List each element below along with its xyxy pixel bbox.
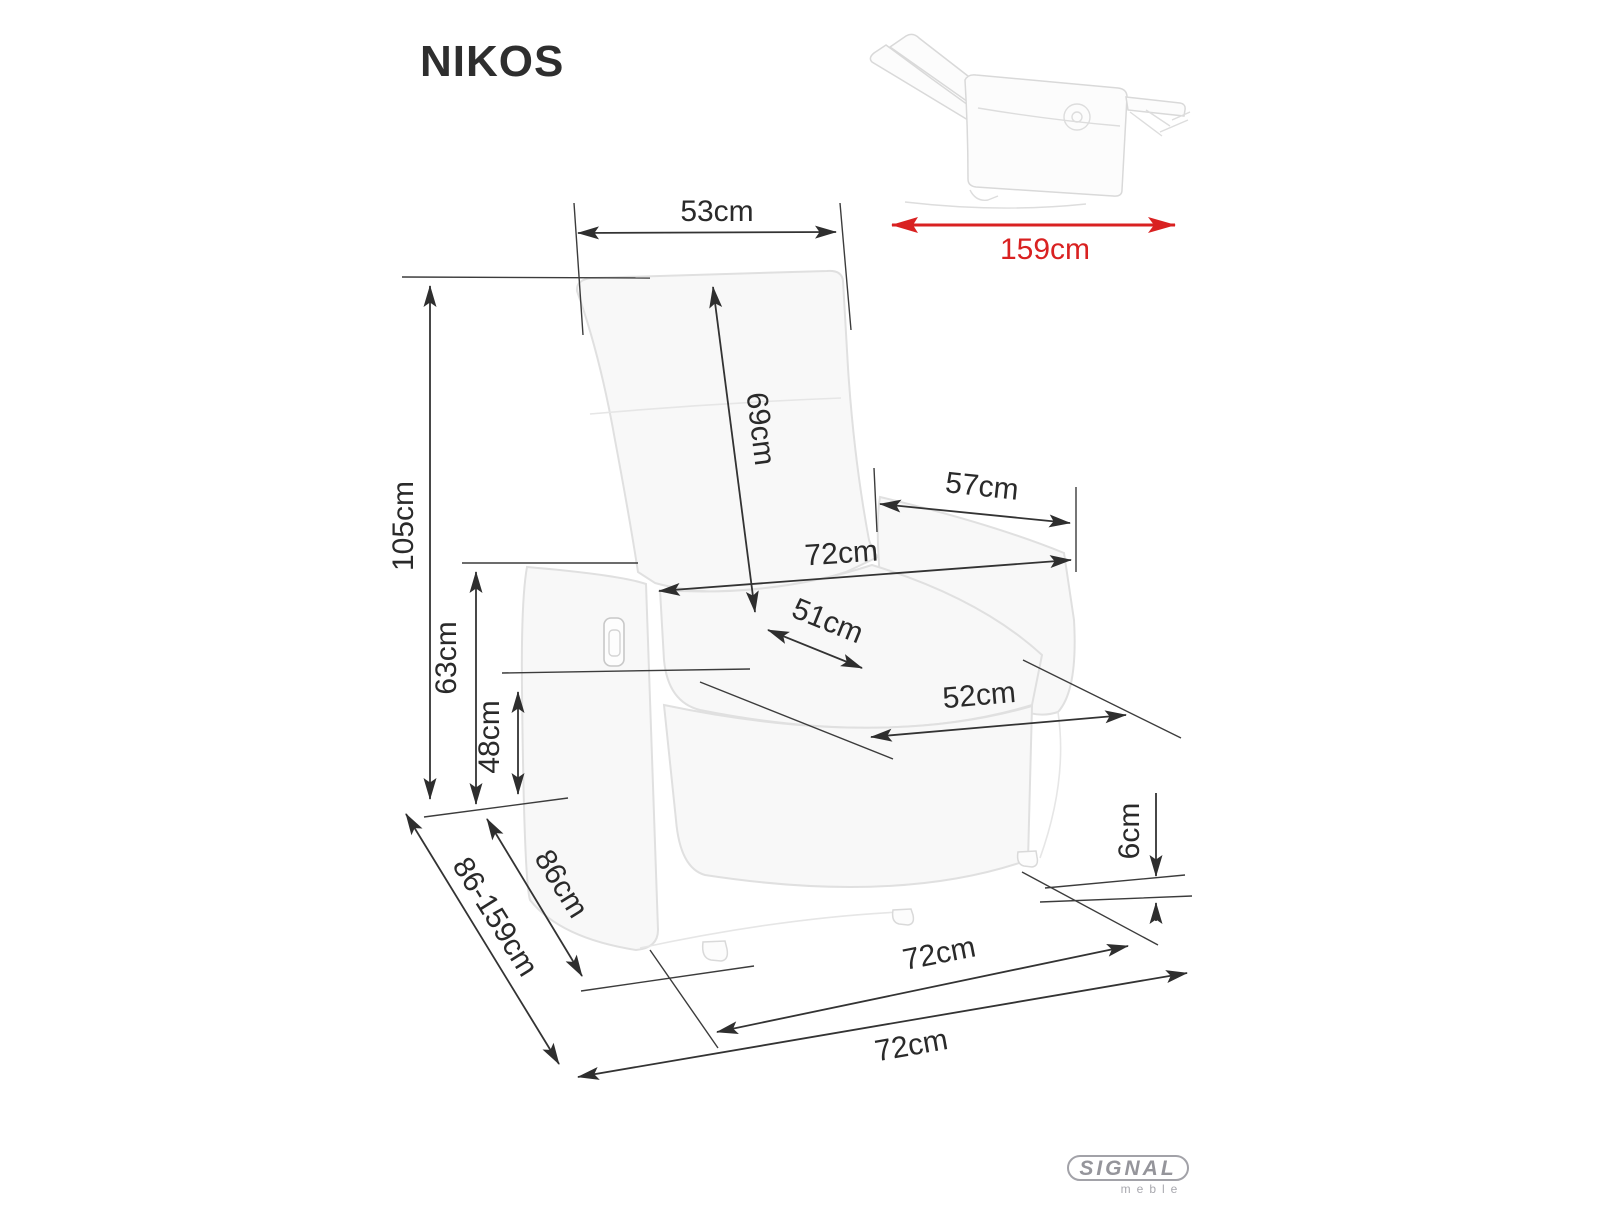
chair-foot-left <box>703 941 728 961</box>
dimension-label: 105cm <box>387 481 420 571</box>
chair-right-front-edge <box>1040 712 1061 858</box>
dimension-label: 48cm <box>473 700 506 773</box>
chair-base <box>664 705 1032 887</box>
chair-left-armrest <box>522 567 658 950</box>
reclined-base-line <box>905 202 1086 208</box>
brand-logo: SIGNAL meble <box>1068 1156 1188 1196</box>
reclined-footrest <box>1126 97 1185 116</box>
dimension-label: 72cm <box>804 535 879 573</box>
dimension-line <box>578 232 836 233</box>
reclined-foot <box>970 190 998 200</box>
dim-length-reclined: 159cm <box>892 225 1175 266</box>
dimension-label: 57cm <box>944 466 1020 506</box>
dimension-label: 159cm <box>1000 233 1090 266</box>
recliner-lever <box>604 618 624 666</box>
dim-width-base: 72cm <box>578 973 1187 1077</box>
drawing-svg: NIKOS 159cm 53cm 69cm 105cm 63cm 48cm 57… <box>0 0 1600 1224</box>
logo-tagline-text: meble <box>1121 1182 1184 1196</box>
extension-line <box>581 966 754 991</box>
extension-line <box>1040 875 1192 902</box>
dimension-label: 6cm <box>1113 803 1146 860</box>
reclined-body <box>965 75 1127 196</box>
dimension-label: 53cm <box>680 195 753 228</box>
dimension-label: 72cm <box>900 930 978 976</box>
chair-foot-right <box>1018 851 1038 867</box>
dimension-label: 52cm <box>941 676 1017 715</box>
dim-foot-clearance: 6cm <box>1040 793 1192 921</box>
logo-brand-text: SIGNAL <box>1079 1157 1176 1180</box>
drawing-reclined-chair <box>870 34 1190 208</box>
product-title: NIKOS <box>420 37 564 86</box>
dimension-label: 63cm <box>430 621 463 694</box>
chair-foot-mid <box>893 909 914 925</box>
dimension-label: 72cm <box>872 1023 950 1068</box>
chair-bottom-edge <box>640 912 900 948</box>
dimension-drawing-canvas: NIKOS 159cm 53cm 69cm 105cm 63cm 48cm 57… <box>0 0 1600 1224</box>
